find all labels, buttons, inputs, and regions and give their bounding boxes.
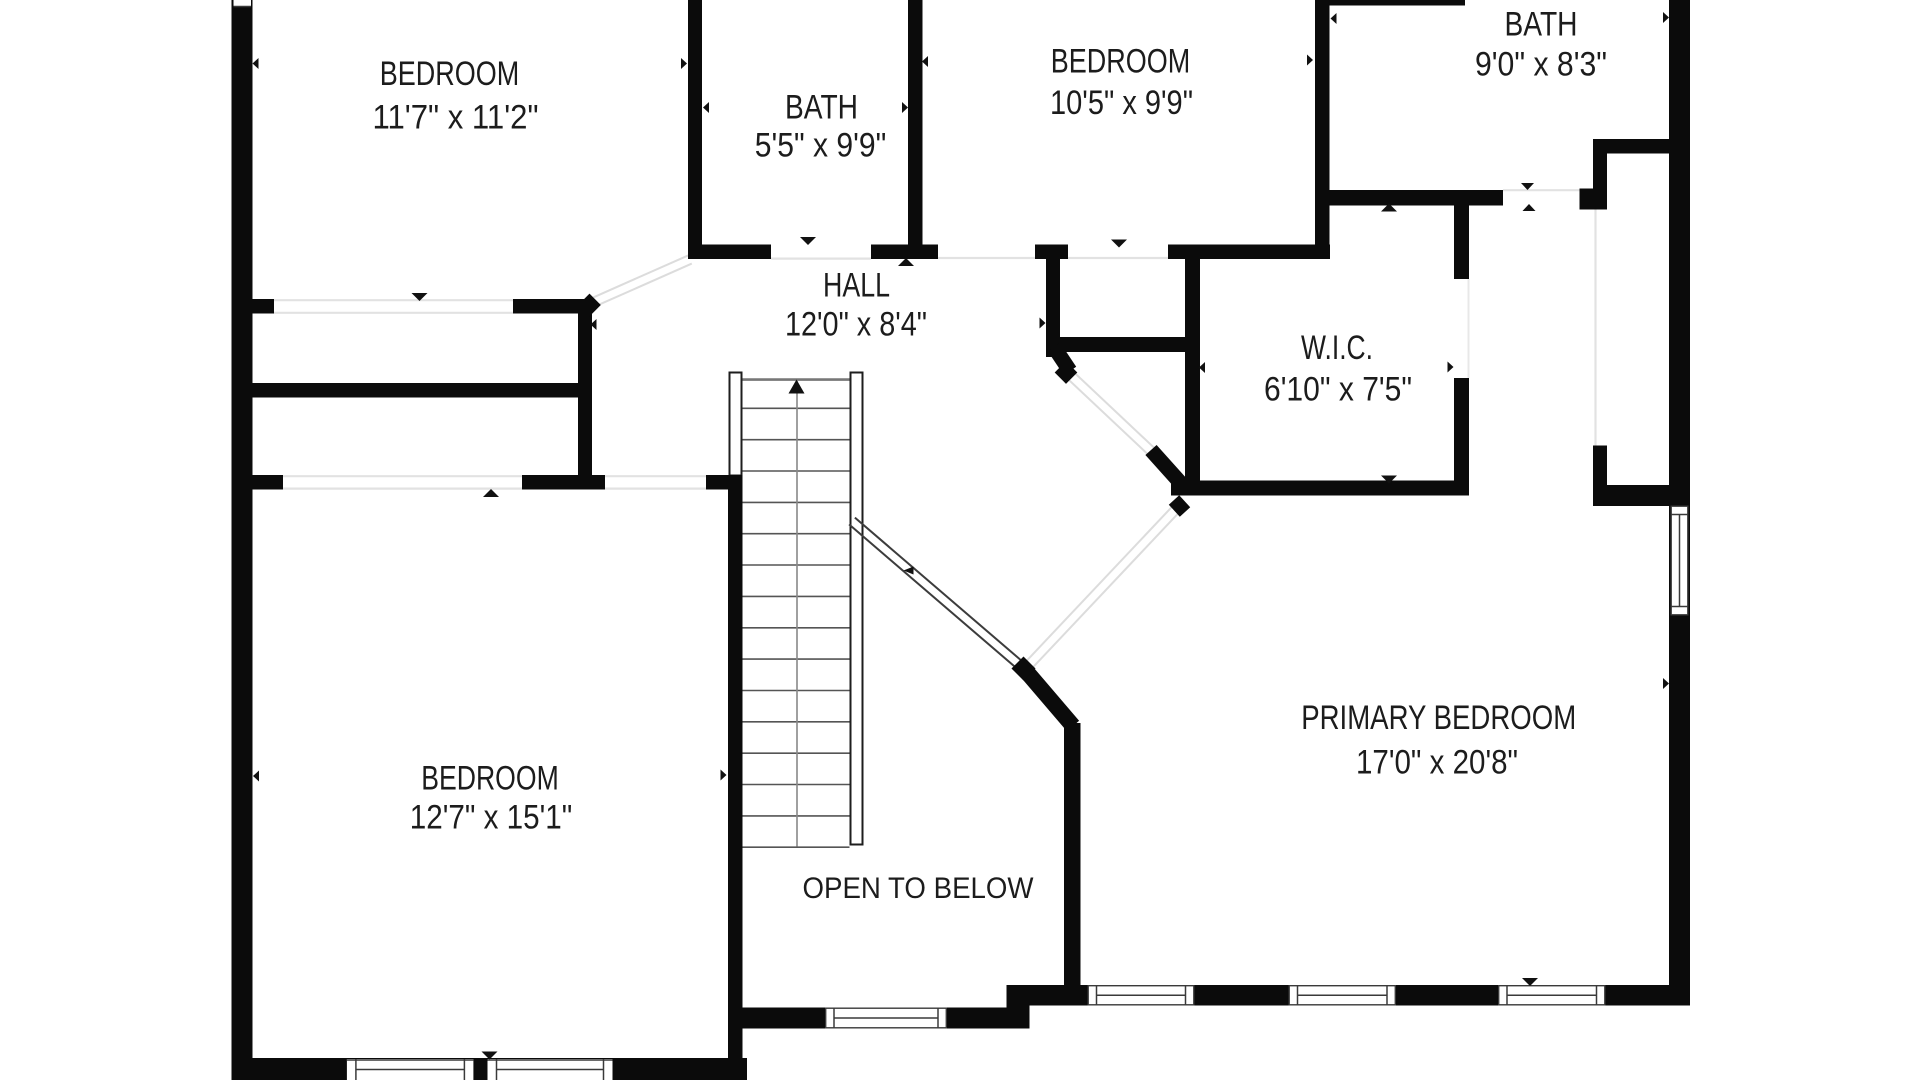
svg-text:10'5" x 9'9": 10'5" x 9'9" [1050,84,1193,122]
svg-text:9'0" x 8'3": 9'0" x 8'3" [1475,45,1607,83]
svg-text:BATH: BATH [1505,5,1578,43]
svg-text:12'7" x 15'1": 12'7" x 15'1" [410,798,573,836]
svg-text:BEDROOM: BEDROOM [1051,42,1191,80]
svg-text:HALL: HALL [823,266,890,304]
svg-text:W.I.C.: W.I.C. [1301,329,1373,367]
svg-text:11'7" x 11'2": 11'7" x 11'2" [373,98,539,136]
svg-text:PRIMARY BEDROOM: PRIMARY BEDROOM [1301,699,1576,737]
svg-text:5'5" x 9'9": 5'5" x 9'9" [755,126,887,164]
svg-text:BATH: BATH [785,88,858,126]
svg-text:17'0" x 20'8": 17'0" x 20'8" [1356,743,1518,781]
svg-text:12'0" x 8'4": 12'0" x 8'4" [785,305,927,343]
svg-text:BEDROOM: BEDROOM [421,759,559,797]
svg-text:OPEN TO BELOW: OPEN TO BELOW [803,872,1035,905]
svg-text:BEDROOM: BEDROOM [380,55,520,93]
svg-text:6'10" x 7'5": 6'10" x 7'5" [1264,370,1412,408]
